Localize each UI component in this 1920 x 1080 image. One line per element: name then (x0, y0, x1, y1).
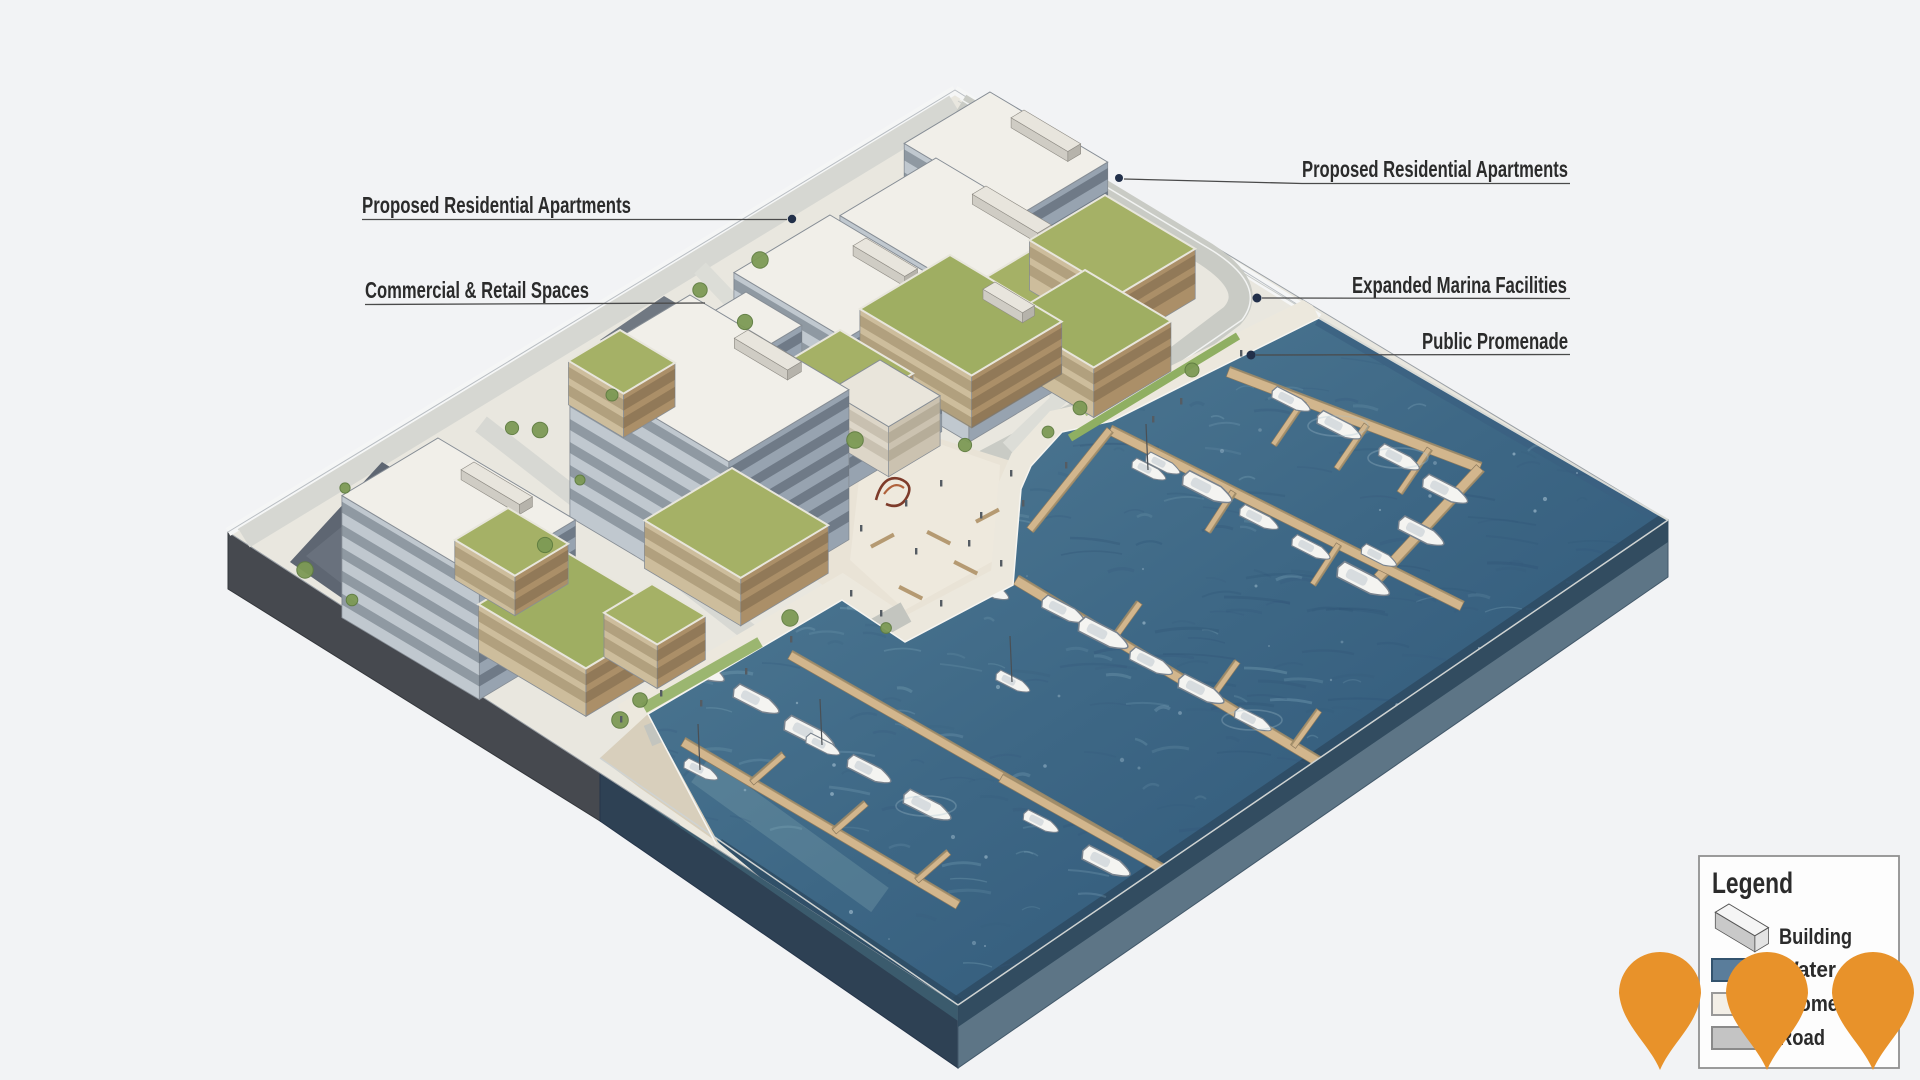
svg-text:Proposed Residential Apartment: Proposed Residential Apartments (1302, 156, 1568, 182)
svg-text:Commercial & Retail Spaces: Commercial & Retail Spaces (365, 277, 589, 303)
svg-text:Building: Building (1779, 924, 1852, 949)
svg-text:Public Promenade: Public Promenade (1422, 328, 1568, 354)
svg-text:Proposed Residential Apartment: Proposed Residential Apartments (362, 192, 631, 218)
svg-text:Expanded Marina Facilities: Expanded Marina Facilities (1352, 272, 1567, 298)
svg-text:Legend: Legend (1712, 867, 1793, 900)
